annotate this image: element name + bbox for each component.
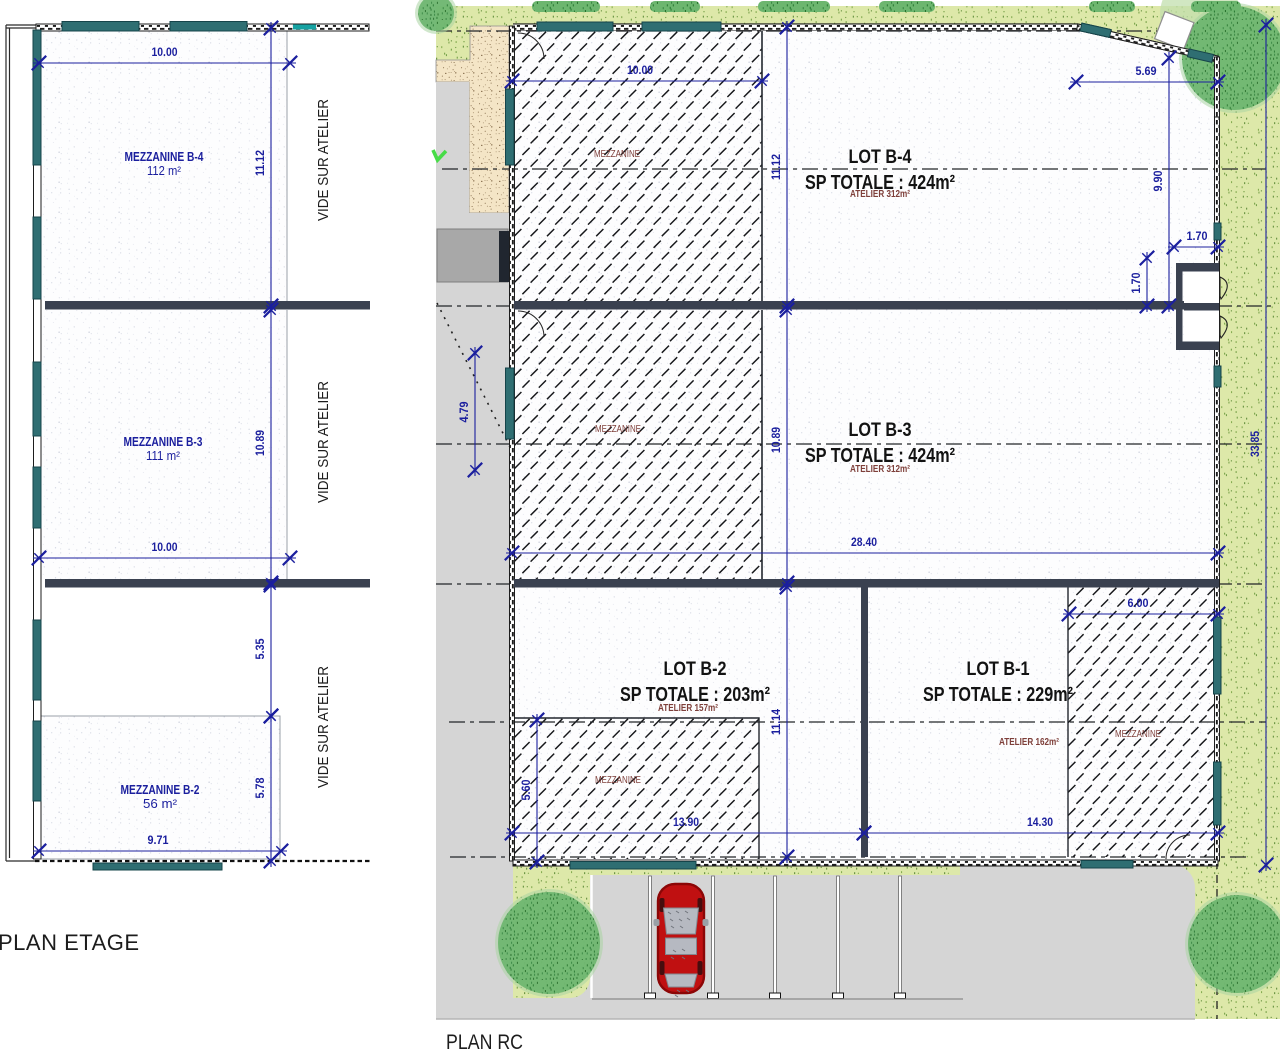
svg-text:PLAN ETAGE: PLAN ETAGE (0, 930, 140, 955)
svg-text:ATELIER 157m²: ATELIER 157m² (658, 702, 718, 714)
svg-text:SP TOTALE : 229m²: SP TOTALE : 229m² (923, 684, 1073, 706)
svg-text:5.78: 5.78 (255, 777, 267, 799)
svg-text:11.14: 11.14 (771, 708, 783, 735)
svg-text:6.00: 6.00 (1128, 598, 1149, 610)
svg-text:1.70: 1.70 (1187, 231, 1208, 243)
svg-text:LOT B-1: LOT B-1 (967, 659, 1030, 680)
svg-text:ATELIER 162m²: ATELIER 162m² (999, 736, 1059, 748)
svg-text:MEZZANINE: MEZZANINE (595, 423, 641, 435)
svg-text:VIDE SUR ATELIER: VIDE SUR ATELIER (315, 666, 332, 788)
svg-text:MEZZANINE B-2: MEZZANINE B-2 (121, 783, 200, 797)
svg-text:11.12: 11.12 (771, 154, 783, 180)
svg-text:MEZZANINE: MEZZANINE (1115, 728, 1161, 740)
svg-text:13.90: 13.90 (673, 817, 699, 829)
svg-text:1.70: 1.70 (1131, 273, 1143, 294)
svg-text:111 m²: 111 m² (146, 449, 180, 463)
svg-text:112 m²: 112 m² (147, 164, 181, 178)
svg-text:PLAN RC: PLAN RC (446, 1031, 523, 1050)
svg-text:10.00: 10.00 (152, 47, 178, 59)
svg-text:11.12: 11.12 (255, 150, 267, 176)
svg-text:33.85: 33.85 (1250, 430, 1262, 457)
svg-text:10.89: 10.89 (255, 430, 267, 456)
svg-text:LOT B-3: LOT B-3 (849, 420, 912, 441)
svg-text:9.90: 9.90 (1153, 171, 1165, 192)
svg-text:5.35: 5.35 (255, 638, 267, 660)
svg-text:VIDE SUR ATELIER: VIDE SUR ATELIER (315, 381, 332, 503)
svg-text:LOT B-4: LOT B-4 (849, 147, 912, 168)
svg-text:ATELIER 312m²: ATELIER 312m² (850, 463, 910, 475)
svg-text:10.00: 10.00 (627, 65, 653, 77)
svg-text:10.89: 10.89 (771, 427, 783, 453)
svg-text:14.30: 14.30 (1027, 817, 1053, 829)
svg-text:4.79: 4.79 (459, 402, 471, 423)
svg-text:VIDE SUR ATELIER: VIDE SUR ATELIER (315, 99, 332, 221)
svg-text:9.71: 9.71 (148, 835, 170, 847)
svg-text:56 m²: 56 m² (143, 797, 177, 811)
svg-text:5.60: 5.60 (521, 780, 533, 801)
svg-text:5.69: 5.69 (1136, 66, 1157, 78)
svg-text:MEZZANINE: MEZZANINE (595, 774, 641, 786)
svg-text:MEZZANINE B-3: MEZZANINE B-3 (124, 435, 203, 449)
svg-text:MEZZANINE B-4: MEZZANINE B-4 (125, 150, 204, 164)
svg-text:ATELIER 312m²: ATELIER 312m² (850, 188, 910, 200)
svg-text:28.40: 28.40 (851, 537, 877, 549)
svg-text:10.00: 10.00 (152, 542, 178, 554)
svg-text:LOT B-2: LOT B-2 (664, 659, 727, 680)
svg-text:MEZZANINE: MEZZANINE (594, 148, 640, 160)
